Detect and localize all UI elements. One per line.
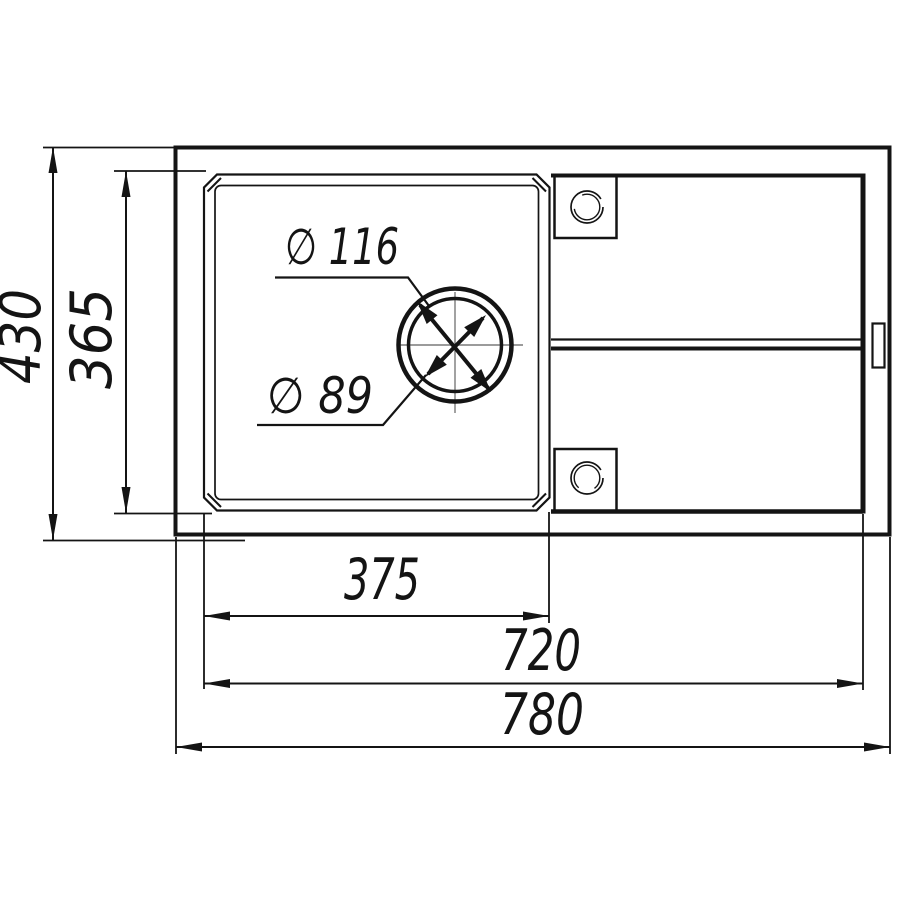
drainboard bbox=[551, 174, 885, 514]
bowl-chamfer-top-left bbox=[208, 178, 222, 192]
dim-drain-inner: ∅ 89 bbox=[257, 367, 426, 425]
edge-marker-rect bbox=[873, 324, 885, 368]
label-430: 430 bbox=[0, 289, 54, 384]
arrow-780-right bbox=[864, 743, 890, 752]
label-375: 375 bbox=[344, 547, 420, 613]
bowl-chamfer-bottom-left bbox=[208, 494, 222, 508]
faucet-hole-bottom bbox=[555, 449, 617, 511]
dim-bowl-depth: 365 bbox=[59, 171, 212, 514]
faucet-circle-bottom bbox=[571, 462, 603, 494]
drawing-canvas: ∅ 116 ∅ 89 430 365 375 bbox=[0, 0, 900, 900]
faucet-square-bottom bbox=[555, 449, 617, 511]
dim-bowl-width: 375 bbox=[204, 512, 549, 689]
label-780: 780 bbox=[500, 682, 584, 748]
arrow-430-down bbox=[49, 514, 58, 540]
outer-outline bbox=[176, 148, 890, 535]
dim-drain-outer: ∅ 116 bbox=[275, 218, 429, 306]
bowl-chamfer-bottom-right bbox=[533, 494, 547, 508]
drain-hole bbox=[397, 289, 523, 414]
faucet-square-top bbox=[555, 178, 617, 239]
label-365: 365 bbox=[59, 288, 125, 389]
faucet-circle-top bbox=[571, 191, 603, 223]
faucet-hole-top bbox=[555, 178, 617, 239]
outer-rectangle bbox=[176, 148, 890, 535]
faucet-circle-top-inner bbox=[574, 194, 600, 220]
dim-inner-width: 720 bbox=[204, 514, 863, 690]
drain-inner-diameter-label: ∅ 89 bbox=[267, 367, 373, 425]
label-720: 720 bbox=[501, 618, 581, 684]
faucet-circle-bottom-inner bbox=[574, 465, 600, 491]
drain-outer-leader-line bbox=[275, 278, 429, 307]
sink-technical-drawing: ∅ 116 ∅ 89 430 365 375 bbox=[0, 0, 900, 900]
drain-outer-diameter-label: ∅ 116 bbox=[285, 218, 399, 276]
arrow-365-down bbox=[122, 487, 131, 513]
bowl-chamfer-top-right bbox=[533, 178, 547, 192]
arrow-720-left bbox=[204, 679, 230, 688]
arrow-365-up bbox=[122, 171, 131, 197]
arrow-375-left bbox=[204, 612, 230, 621]
arrow-780-left bbox=[176, 743, 202, 752]
arrow-720-right bbox=[837, 679, 863, 688]
arrow-430-up bbox=[49, 147, 58, 173]
